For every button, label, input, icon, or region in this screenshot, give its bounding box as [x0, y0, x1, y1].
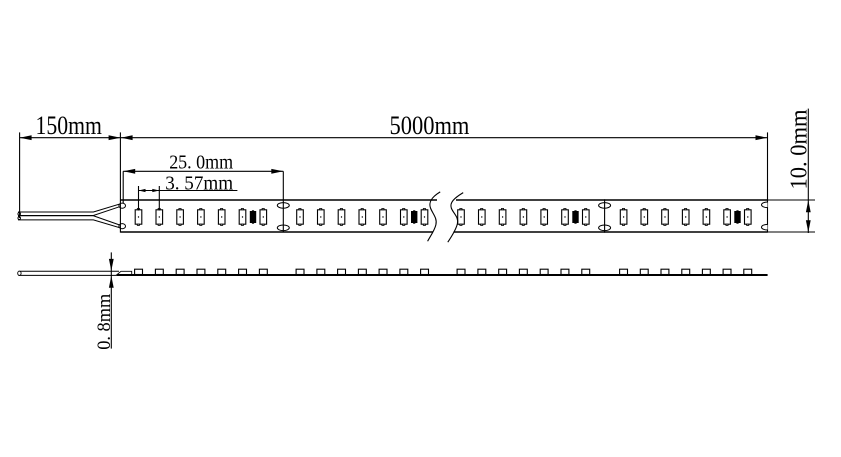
svg-text:3. 57mm: 3. 57mm — [165, 172, 233, 194]
svg-text:0. 8mm: 0. 8mm — [95, 293, 115, 350]
svg-text:150mm: 150mm — [36, 111, 102, 140]
svg-text:5000mm: 5000mm — [390, 111, 470, 140]
svg-text:10. 0mm: 10. 0mm — [786, 110, 813, 190]
svg-text:25. 0mm: 25. 0mm — [169, 151, 233, 173]
